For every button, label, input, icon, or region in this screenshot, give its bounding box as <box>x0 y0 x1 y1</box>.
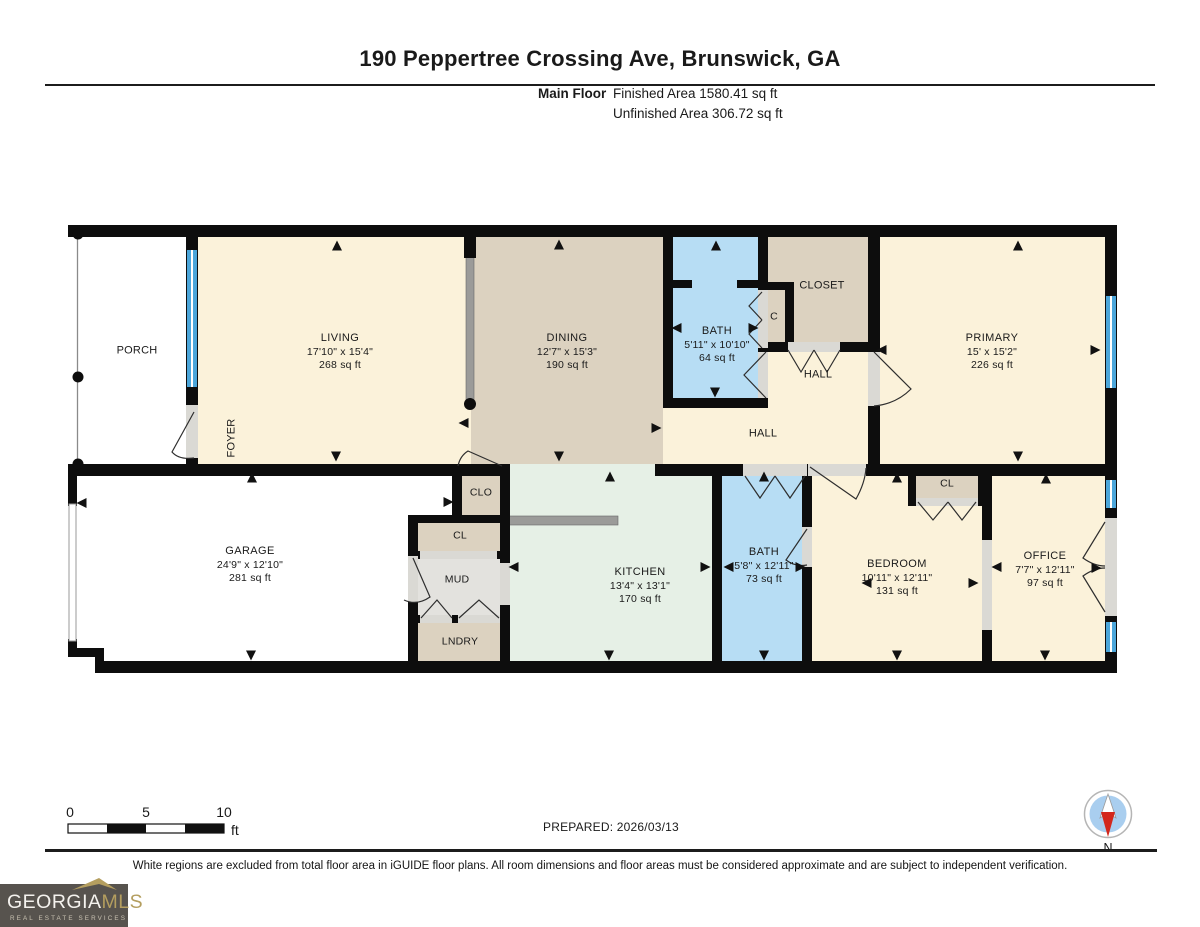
logo-tagline: REAL ESTATE SERVICES <box>10 915 127 922</box>
room-area: 97 sq ft <box>1015 577 1074 591</box>
room-label-mud: MUD <box>445 573 470 587</box>
room-label-foyer: FOYER <box>225 419 239 458</box>
prepared-date: PREPARED: 2026/03/13 <box>543 820 679 834</box>
room-area: 190 sq ft <box>537 359 597 373</box>
room-label-office: OFFICE 7'7" x 12'11" 97 sq ft <box>1015 550 1074 591</box>
georgia-mls-logo: GEORGIAMLS REAL ESTATE SERVICES <box>0 884 128 927</box>
room-label-cl2: CL <box>940 477 954 491</box>
room-label-primary: PRIMARY 15' x 15'2" 226 sq ft <box>966 332 1019 373</box>
room-name: GARAGE <box>217 545 283 559</box>
room-name: PRIMARY <box>966 332 1019 346</box>
kitchen-counter <box>507 516 618 525</box>
room-dims: 5'8" x 12'11" <box>734 559 793 573</box>
structural-post <box>464 398 476 410</box>
room-name: OFFICE <box>1015 550 1074 564</box>
kitchen-area <box>500 464 722 664</box>
room-dims: 15' x 15'2" <box>966 345 1019 359</box>
room-dims: 10'11" x 12'11" <box>862 571 933 585</box>
room-label-kitchen: KITCHEN 13'4" x 13'1" 170 sq ft <box>610 566 670 607</box>
bath1-area <box>663 237 768 408</box>
room-label-bedroom: BEDROOM 10'11" x 12'11" 131 sq ft <box>862 558 933 599</box>
page-title: 190 Peppertree Crossing Ave, Brunswick, … <box>0 46 1200 72</box>
logo-roof-icon <box>72 877 122 891</box>
room-dims: 13'4" x 13'1" <box>610 579 670 593</box>
room-name: DINING <box>537 332 597 346</box>
room-label-cl: CL <box>453 529 467 543</box>
footer-divider <box>45 849 1157 852</box>
room-label-closet: CLOSET <box>799 279 844 293</box>
room-name: BEDROOM <box>862 558 933 572</box>
room-label-bath1: BATH 5'11" x 10'10" 64 sq ft <box>684 325 749 366</box>
room-label-dining: DINING 12'7" x 15'3" 190 sq ft <box>537 332 597 373</box>
scale-unit: ft <box>231 822 239 838</box>
room-area: 226 sq ft <box>966 359 1019 373</box>
floor-plan-drawing <box>0 0 1200 927</box>
room-area: 73 sq ft <box>734 573 793 587</box>
unfinished-area: Unfinished Area 306.72 sq ft <box>613 106 783 121</box>
room-area: 64 sq ft <box>684 352 749 366</box>
room-label-c-closet: C <box>770 310 778 324</box>
room-label-hall-main: HALL <box>749 427 777 441</box>
room-label-hall-upper: HALL <box>804 368 832 382</box>
room-label-garage: GARAGE 24'9" x 12'10" 281 sq ft <box>217 545 283 586</box>
logo-brand: GEORGIAMLS <box>7 891 143 914</box>
room-name: BATH <box>684 325 749 339</box>
room-area: 268 sq ft <box>307 359 373 373</box>
room-dims: 5'11" x 10'10" <box>684 338 749 352</box>
scale-bar <box>68 824 224 833</box>
room-label-bath2: BATH 5'8" x 12'11" 73 sq ft <box>734 546 793 587</box>
room-area: 131 sq ft <box>862 585 933 599</box>
room-label-lndry: LNDRY <box>442 635 478 649</box>
scale-tick-5: 5 <box>142 804 150 820</box>
mud-area <box>408 555 510 622</box>
room-area: 281 sq ft <box>217 572 283 586</box>
floor-label: Main Floor <box>538 86 606 101</box>
room-dims: 7'7" x 12'11" <box>1015 563 1074 577</box>
scale-tick-0: 0 <box>66 804 74 820</box>
scale-tick-10: 10 <box>216 804 232 820</box>
compass-icon <box>1085 791 1132 838</box>
room-dims: 17'10" x 15'4" <box>307 345 373 359</box>
garage-door <box>69 504 76 641</box>
room-dims: 12'7" x 15'3" <box>537 345 597 359</box>
open-divider <box>466 256 474 402</box>
room-label-porch: PORCH <box>117 344 158 358</box>
finished-area: Finished Area 1580.41 sq ft <box>613 86 777 101</box>
room-area: 170 sq ft <box>610 593 670 607</box>
room-label-clo: CLO <box>470 486 492 500</box>
compass-north-label: N <box>1103 841 1112 855</box>
disclaimer-text: White regions are excluded from total fl… <box>0 860 1200 872</box>
room-name: BATH <box>734 546 793 560</box>
room-label-living: LIVING 17'10" x 15'4" 268 sq ft <box>307 332 373 373</box>
room-dims: 24'9" x 12'10" <box>217 558 283 572</box>
room-name: KITCHEN <box>610 566 670 580</box>
floor-plan-page: 190 Peppertree Crossing Ave, Brunswick, … <box>0 0 1200 927</box>
room-name: LIVING <box>307 332 373 346</box>
